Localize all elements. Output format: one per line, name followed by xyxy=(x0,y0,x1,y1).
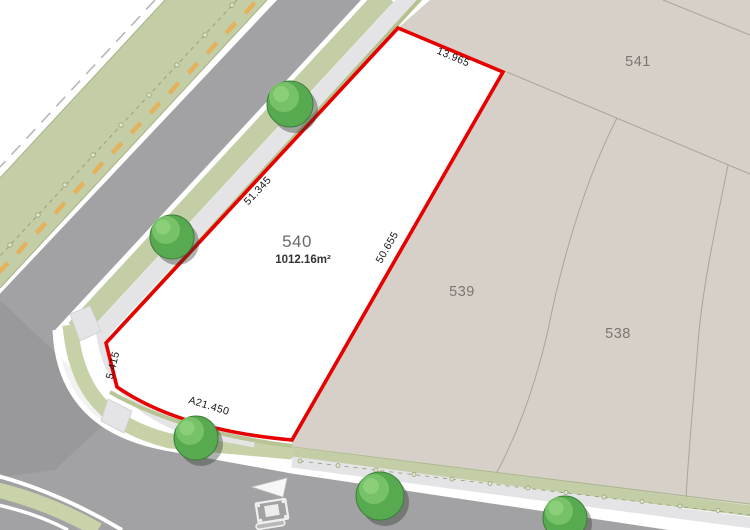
lot-540-area: 1012.16m² xyxy=(275,254,331,266)
site-plan-viewport: 540 1012.16m² 13.965 51.345 50.655 5.415… xyxy=(0,0,750,530)
lot-541-number: 541 xyxy=(625,54,651,70)
lot-538-number: 538 xyxy=(605,326,631,342)
lot-539-number: 539 xyxy=(449,284,475,300)
site-plan-canvas: 540 1012.16m² 13.965 51.345 50.655 5.415… xyxy=(0,0,750,530)
lot-540-number: 540 xyxy=(282,232,312,251)
